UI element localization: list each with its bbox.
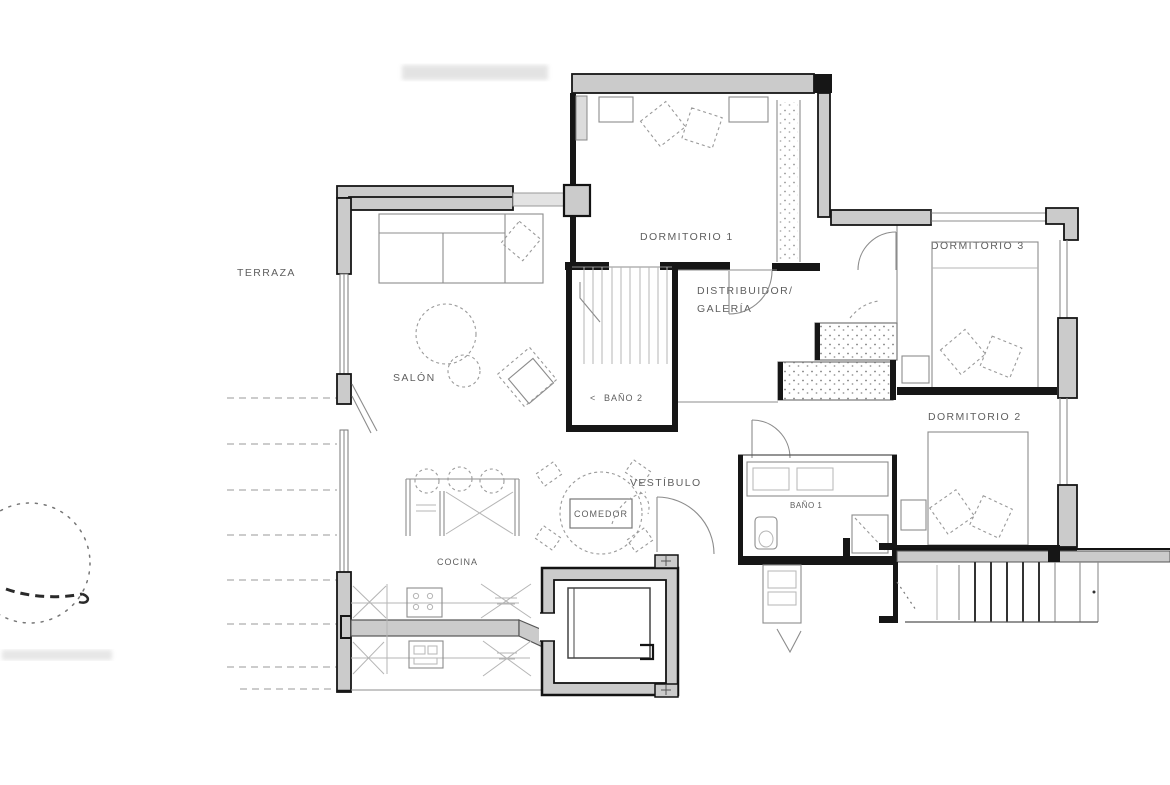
wardrobe-symbol <box>778 323 897 400</box>
nightstand-symbol <box>729 97 768 122</box>
exterior-wall-east <box>1058 240 1077 547</box>
round-table-symbol <box>448 355 480 387</box>
bed-symbol <box>928 432 1028 545</box>
room-label-vestibulo: VESTÍBULO <box>630 476 702 489</box>
nightstand-symbol <box>901 500 926 530</box>
faint-watermark <box>2 65 548 660</box>
chair-symbol <box>627 528 653 552</box>
vanity-symbol <box>747 462 888 496</box>
skylight-lines <box>584 267 667 364</box>
kitchen-counter-wall <box>351 620 519 636</box>
arrow-icon: < <box>590 393 596 403</box>
room-label-cocina: COCINA <box>437 557 478 567</box>
room-label-distribuidor: DISTRIBUIDOR/ <box>697 285 793 297</box>
room-label-terraza: TERRAZA <box>237 267 296 279</box>
bed-symbol <box>932 242 1038 388</box>
floor-plan-drawing: TERRAZA <box>0 0 1170 785</box>
sofa-symbol <box>379 214 543 283</box>
room-dormitorio-3: DORMITORIO 3 <box>831 208 1078 388</box>
room-label-dormitorio-1: DORMITORIO 1 <box>640 231 734 243</box>
door-swing-symbol <box>850 301 879 318</box>
door-swing-symbol <box>858 232 896 270</box>
room-label-salon: SALÓN <box>393 371 436 384</box>
nightstand-symbol <box>902 356 929 383</box>
floor-plan-canvas: TERRAZA <box>0 0 1170 785</box>
room-label-comedor: COMEDOR <box>574 509 628 519</box>
door-swing-symbol <box>580 282 600 322</box>
room-bano-2: < BAÑO 2 <box>566 262 678 432</box>
room-terraza: TERRAZA <box>227 267 337 689</box>
pillow-symbol <box>641 102 686 147</box>
pillow-symbol <box>940 329 985 374</box>
bed-symbol <box>641 102 723 149</box>
room-dormitorio-2: DORMITORIO 2 <box>893 387 1077 552</box>
wall-corner <box>1046 208 1078 240</box>
window-symbol <box>1060 240 1067 318</box>
pillow-symbol <box>930 490 975 535</box>
chair-symbol <box>535 526 561 550</box>
chair-symbol <box>536 462 562 486</box>
room-label-bano-1: BAÑO 1 <box>790 501 822 510</box>
stair-direction-arrow <box>897 582 916 610</box>
window-symbol <box>931 210 1046 224</box>
galeria-glazing <box>777 100 800 262</box>
room-bano-1: BAÑO 1 <box>738 455 897 652</box>
appliance-symbol <box>409 641 443 668</box>
salon-walls <box>337 186 565 692</box>
window-symbol <box>1060 398 1067 485</box>
stairs-symbol <box>879 543 1170 623</box>
pillow-symbol <box>682 108 722 148</box>
room-label-dormitorio-2: DORMITORIO 2 <box>928 411 1022 423</box>
armchair-symbol <box>497 347 556 406</box>
room-salon: SALÓN <box>379 214 557 407</box>
nightstand-symbol <box>599 97 633 122</box>
door-swing-symbol <box>752 420 790 458</box>
room-dormitorio-1: DORMITORIO 1 <box>564 74 832 271</box>
window-symbol <box>340 274 348 374</box>
round-table-symbol <box>416 304 476 364</box>
room-cocina: COCINA <box>351 467 545 676</box>
room-comedor: COMEDOR <box>535 460 653 554</box>
elevator-symbol <box>539 555 678 697</box>
tree-sketch-symbol <box>0 503 90 623</box>
pillow-symbol <box>980 336 1022 378</box>
room-label-bano-2: BAÑO 2 <box>604 393 643 403</box>
window-symbol <box>340 430 348 572</box>
plant-sketch-symbol <box>640 492 649 514</box>
check-mark-symbol <box>777 629 801 652</box>
toilet-symbol <box>755 517 777 549</box>
terrace-paving-lines <box>227 398 337 689</box>
room-label-galeria: GALERÍA <box>697 302 752 315</box>
pillow-symbol <box>970 496 1013 539</box>
water-heater-symbol <box>763 565 801 623</box>
door-swing-symbol <box>657 497 714 554</box>
stool-symbol <box>415 469 439 493</box>
elevator-car <box>568 588 650 658</box>
stool-symbol <box>480 469 504 493</box>
door-swing-symbol <box>352 384 377 433</box>
wall-column <box>564 185 590 216</box>
stair-steps <box>905 562 1098 622</box>
